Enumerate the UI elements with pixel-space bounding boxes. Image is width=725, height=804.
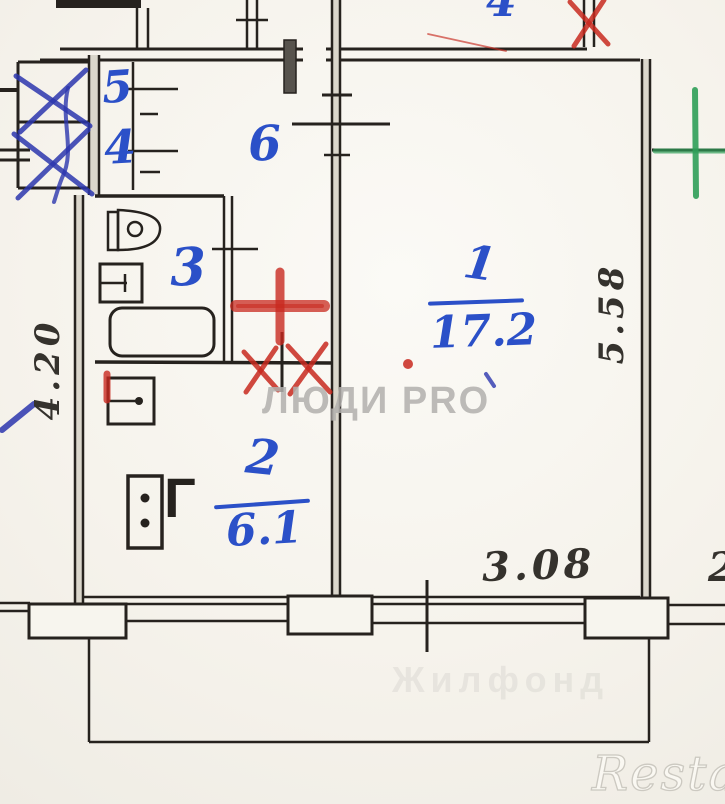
watermark-balcony: Жилфонд — [392, 662, 609, 698]
restate-logo: Restate — [592, 750, 725, 798]
dim-left: 4.20 — [31, 309, 65, 429]
watermark-center: ЛЮДИ PRO — [262, 382, 490, 420]
washbasin-icon — [100, 264, 142, 302]
dim-right: 5.58 — [595, 253, 629, 373]
room-label-4: 4 — [103, 123, 137, 171]
left-wall — [74, 195, 84, 610]
kitchen-sink-icon — [108, 378, 154, 424]
stove-gas-label: Г — [164, 470, 196, 526]
room1-area: 17.2 — [429, 308, 538, 356]
right-wall — [641, 59, 725, 600]
green-check-mark — [655, 90, 725, 196]
floorplan-scan: ЛЮДИ PRO Жилфонд 5 4 6 3 4 1 17.2 2 6.1 … — [0, 0, 725, 804]
red-dot-room1 — [403, 359, 413, 369]
hall-label-6: 6 — [247, 119, 283, 169]
toilet-icon — [108, 210, 160, 250]
bath-label-3: 3 — [169, 241, 207, 294]
bathroom-walls — [95, 196, 333, 392]
window-wall-group — [0, 580, 725, 652]
dim-bottom: 3.08 — [481, 544, 596, 588]
vent-shaft — [284, 40, 296, 93]
kitchen-area: 6.1 — [225, 506, 304, 554]
room1-number: 1 — [461, 238, 499, 288]
bathtub-icon — [110, 308, 214, 356]
stove-icon — [128, 476, 162, 548]
room-label-5: 5 — [101, 65, 135, 111]
dim-bottom-partial: 2 — [708, 548, 725, 588]
room-label-4-top-partial: 4 — [486, 0, 517, 24]
kitchen-number: 2 — [244, 432, 282, 483]
